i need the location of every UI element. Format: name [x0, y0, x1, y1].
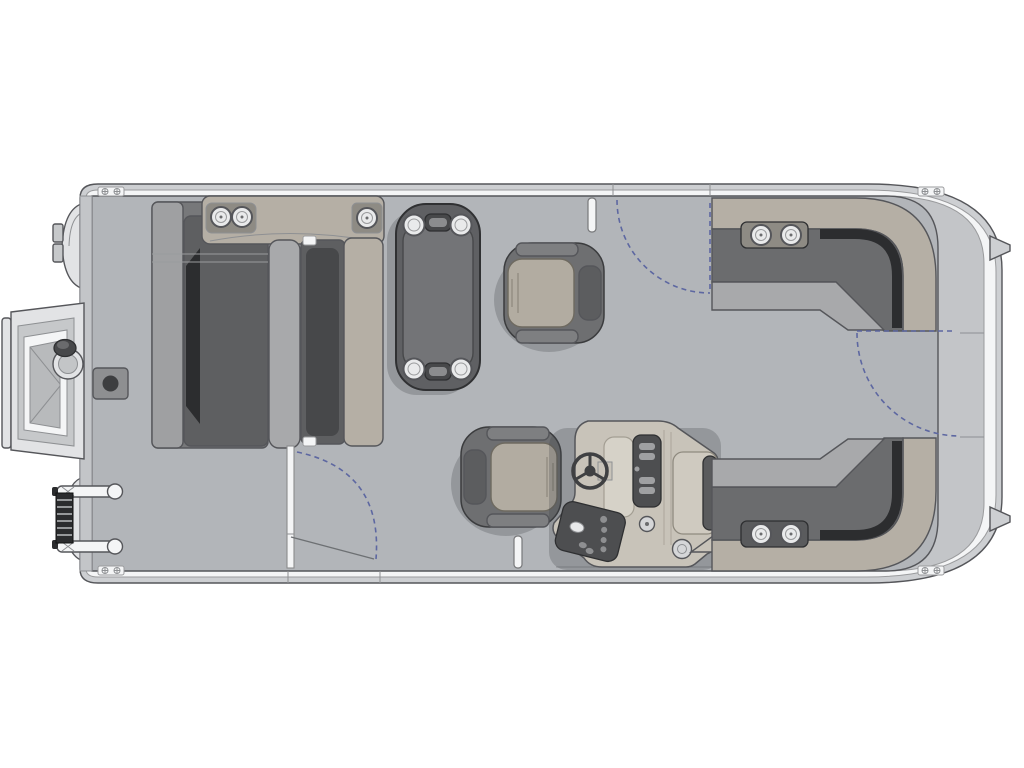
bow-chaise-walkthrough	[269, 240, 300, 448]
nose-pad	[53, 244, 63, 262]
chair-headrest	[464, 450, 486, 504]
center-table	[387, 204, 480, 395]
helm-console	[549, 421, 721, 570]
captain-chair-companion	[494, 243, 604, 352]
bow-boarding-ramp	[2, 303, 84, 459]
chair-headrest	[579, 266, 601, 320]
captain-chair-helm	[451, 427, 561, 536]
gate-latch-post	[588, 198, 596, 232]
bow-bench-left-backrest	[152, 202, 183, 448]
gate-door-open	[287, 446, 294, 568]
gate-latch-post	[514, 536, 522, 568]
ladder-rail-cap	[108, 484, 123, 499]
table-top	[403, 225, 473, 369]
nose-pad	[53, 224, 63, 242]
floorplan-canvas	[0, 0, 1024, 768]
pedestal-base-plate	[93, 368, 128, 399]
hinge-tab	[303, 437, 316, 446]
bow-bench-right-backrest	[344, 238, 383, 446]
table-handle-slot	[429, 218, 447, 227]
chair-armrest	[487, 514, 549, 527]
chair-armrest	[487, 427, 549, 440]
chair-armrest	[516, 330, 578, 343]
bow-bench-right-panel	[306, 248, 339, 436]
bow-lounge	[152, 196, 384, 448]
ladder-rail-cap	[108, 539, 123, 554]
chair-armrest	[516, 243, 578, 256]
ramp-panel	[30, 341, 60, 428]
cushion-crease	[186, 248, 200, 424]
hinge-tab	[303, 236, 316, 245]
ramp-step	[2, 318, 11, 448]
cup-holder	[357, 208, 377, 228]
table-handle-slot	[429, 367, 447, 376]
